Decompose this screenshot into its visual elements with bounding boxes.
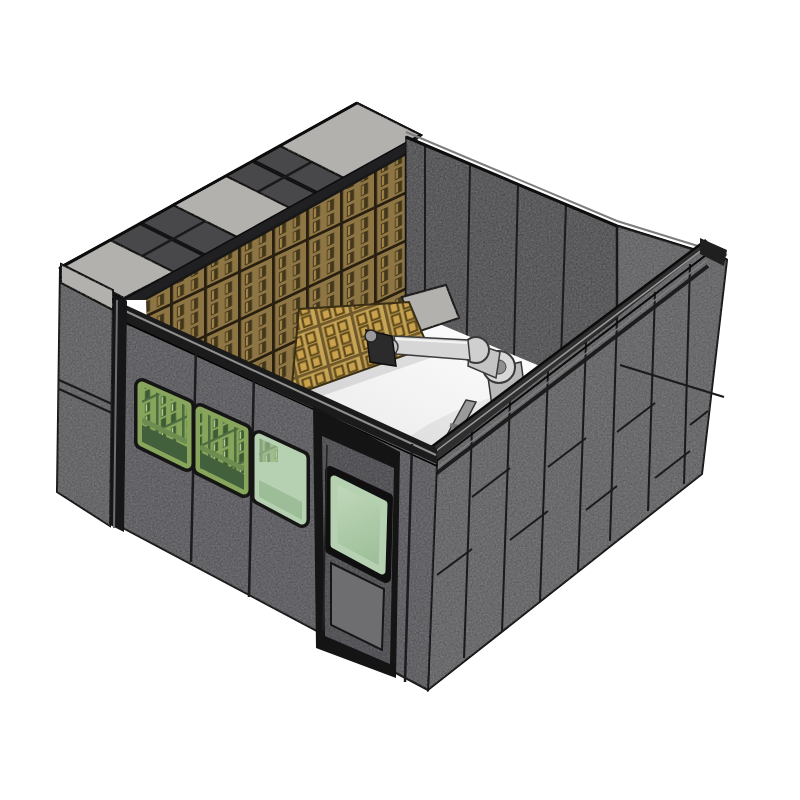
cad-render-viewport (0, 0, 800, 800)
personnel-door (313, 406, 400, 678)
robot-gripper-tool (365, 330, 377, 342)
enclosure-render (0, 0, 800, 800)
left-end-wall (57, 264, 127, 532)
